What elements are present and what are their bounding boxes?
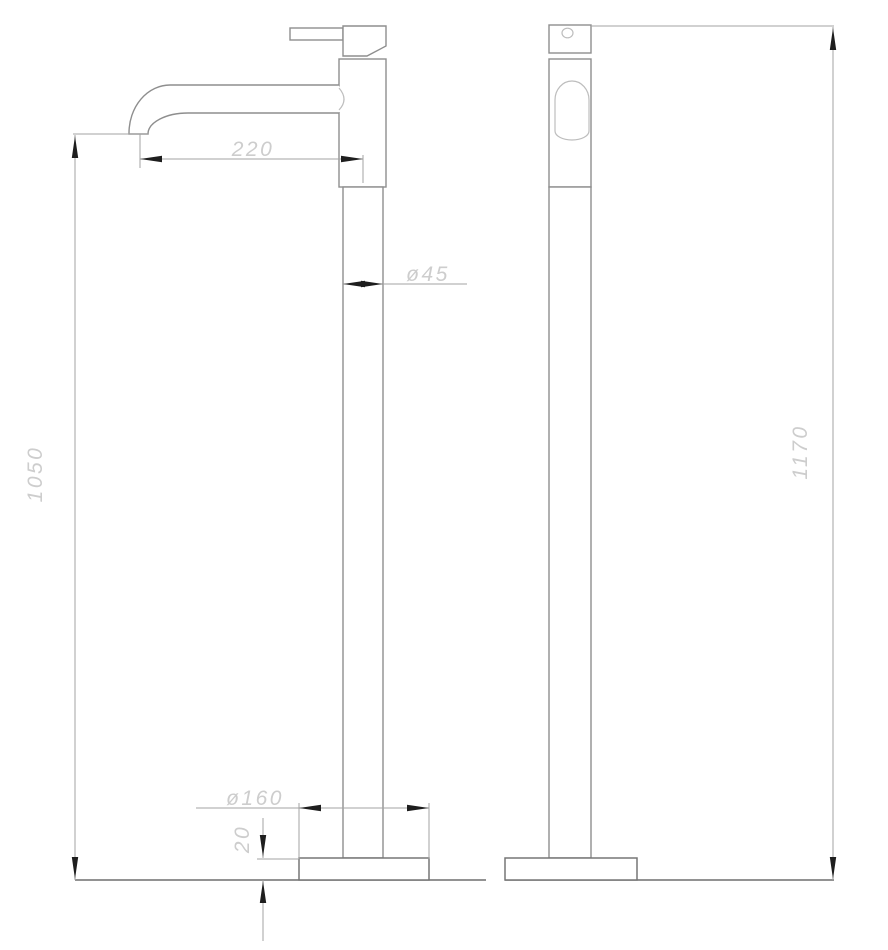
base-plate-side	[299, 858, 429, 880]
label-base-diameter: ø160	[226, 787, 284, 810]
side-view	[129, 26, 429, 880]
arrow-up-total-height	[830, 28, 836, 50]
base-plate-front	[505, 858, 637, 880]
arrow-down-total-height	[830, 857, 836, 879]
arrow-left-base-diameter	[299, 805, 321, 811]
handle-body	[343, 26, 386, 56]
dimension-lines	[73, 26, 834, 941]
arrow-up-base-thickness	[260, 881, 266, 903]
arrow-up-spout-height	[72, 136, 78, 158]
front-view	[505, 25, 637, 880]
arrow-down-spout-height	[72, 857, 78, 879]
lever-handle-bar	[290, 28, 343, 40]
spout	[129, 85, 339, 134]
label-total-height: 1170	[789, 424, 812, 479]
label-spout-reach: 220	[231, 138, 275, 161]
arrow-left-spout-reach	[140, 156, 162, 162]
riser-column-front	[549, 187, 591, 858]
arrow-right-base-diameter	[407, 805, 429, 811]
label-column-diameter: ø45	[406, 263, 450, 286]
arrow-down-base-thickness	[260, 835, 266, 857]
label-base-thickness: 20	[231, 825, 254, 854]
riser-column-side	[343, 187, 383, 858]
technical-drawing-canvas: 220 ø45 1050 ø160 20 1170	[0, 0, 888, 950]
dimension-labels: 220 ø45 1050 ø160 20 1170	[24, 138, 812, 854]
label-spout-height: 1050	[24, 446, 47, 503]
